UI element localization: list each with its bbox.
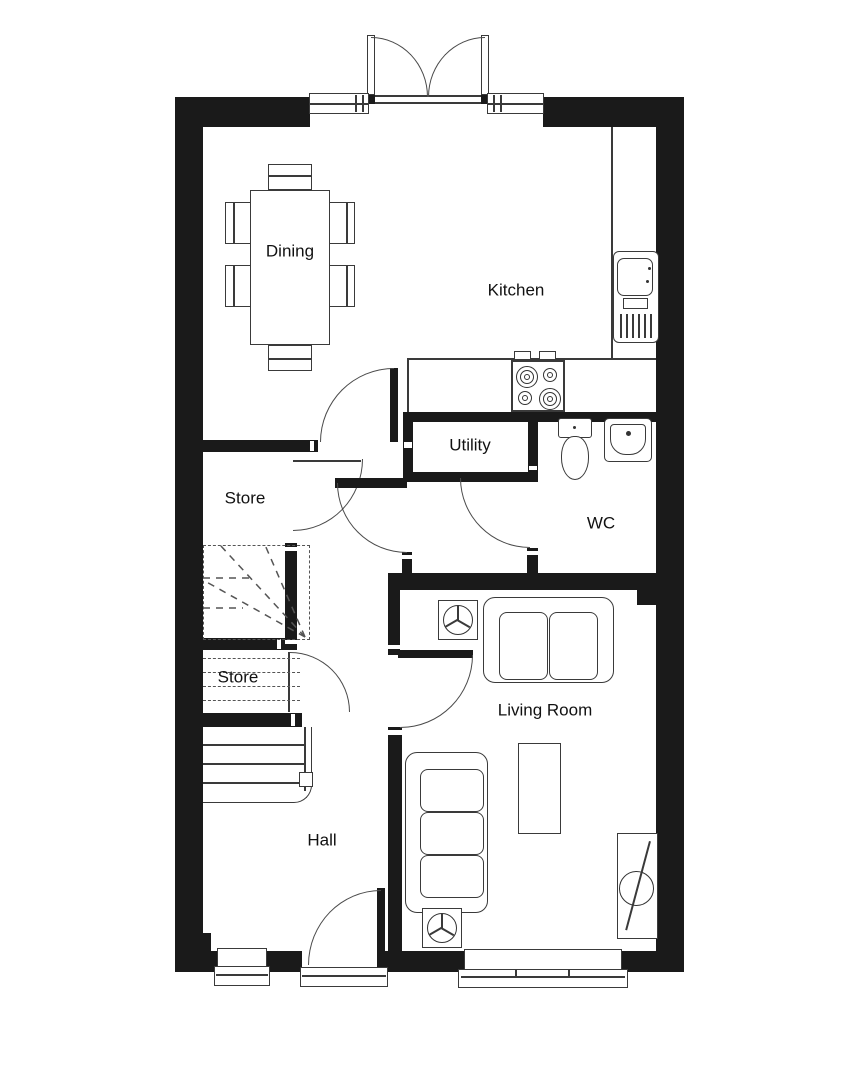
wall-livingroom-pillar [637, 573, 656, 605]
dining-chair-bottom-back [269, 358, 311, 360]
wall-livingroom-north [388, 573, 640, 590]
window-living-sill [458, 969, 628, 988]
front-door-threshold [300, 967, 388, 987]
toilet-button-dot [573, 426, 576, 429]
basin-tap-dot [626, 431, 631, 436]
window-living [464, 949, 622, 971]
dining-chair-left-1-back [233, 203, 235, 243]
kitchen-door-arc [320, 368, 394, 442]
wc-door-arc [460, 478, 530, 548]
window-living-line [461, 976, 625, 978]
dining-chair-right-1 [329, 202, 355, 244]
doorstop-utility-left [404, 442, 412, 448]
french-door-threshold-line-2 [374, 102, 482, 104]
window-hall-small-sill [214, 966, 270, 986]
doorstop-store-top [310, 441, 314, 451]
stove-knob-right [539, 351, 556, 360]
dining-chair-right-1-back [346, 203, 348, 243]
kitchen-sink-tray [623, 298, 648, 309]
dining-chair-top [268, 164, 312, 190]
wall-outer-bottom-2 [266, 951, 302, 972]
room-label-utility: Utility [449, 437, 491, 454]
doorstop-living-wall [388, 730, 402, 735]
sink-tap-dot-2 [646, 280, 649, 283]
wall-outer-bottom-3 [385, 951, 465, 972]
floor-plan: Dining Kitchen Utility WC Store Store Ha… [0, 0, 864, 1080]
kitchen-sink-bowl [617, 258, 653, 296]
window-top-right-tick-1 [493, 95, 495, 112]
window-living-tick-2 [568, 969, 570, 978]
plant-upper-spoke-1 [457, 606, 459, 620]
french-door-arc-right [428, 37, 485, 97]
window-hall-small [217, 948, 267, 968]
sink-drainer-line-1 [620, 314, 622, 338]
burner-br-inner [547, 396, 553, 402]
wall-store2-bottom [203, 713, 302, 727]
sofa-two-seat-cushion-right [549, 612, 598, 680]
dining-chair-right-2-back [346, 266, 348, 306]
store2-dash-4 [203, 700, 300, 701]
store2-dash-1 [203, 658, 300, 659]
doorstop-store-divider [277, 639, 281, 649]
room-label-hall: Hall [307, 832, 336, 849]
room-label-dining: Dining [266, 243, 314, 260]
front-door-arc [308, 890, 381, 965]
burner-bl-inner [522, 395, 528, 401]
stairs-winder-treads [203, 545, 310, 640]
stair-tread-1 [203, 744, 306, 746]
window-living-tick-1 [515, 969, 517, 978]
lobby-door-arc [337, 483, 407, 553]
french-door-arc-left [371, 37, 428, 97]
wall-outer-right [656, 97, 684, 972]
burner-tl-inner [524, 374, 530, 380]
wall-utility-bottom [413, 472, 455, 482]
doorstop-wc-stub [527, 551, 538, 555]
window-top-right-tick-2 [500, 95, 502, 112]
stairs-block [203, 727, 312, 803]
window-top-right-midline [488, 103, 543, 105]
wall-outer-top-left [175, 97, 310, 127]
stair-tread-2 [203, 763, 306, 765]
plant-lower-spoke-1 [441, 914, 443, 928]
store2-door-arc [290, 652, 350, 712]
wall-outer-bottom-4 [622, 951, 684, 972]
room-label-store-lower: Store [218, 669, 259, 686]
dining-chair-left-2 [225, 265, 251, 307]
doorstop-store-stub-bottom [285, 640, 297, 644]
wall-outer-left [175, 97, 203, 972]
window-top-left-tick-1 [355, 95, 357, 112]
dining-chair-left-1 [225, 202, 251, 244]
room-label-kitchen: Kitchen [488, 282, 545, 299]
kitchen-counter-edge-left [407, 358, 409, 412]
dining-chair-left-2-back [233, 266, 235, 306]
room-label-living-room: Living Room [498, 702, 593, 719]
sink-drainer-line-3 [632, 314, 634, 338]
doorstop-utility-right [529, 466, 537, 470]
sofa-three-seat-cushion-2 [420, 812, 484, 855]
wall-store-top [203, 440, 318, 452]
doorstop-living-stub [388, 645, 400, 649]
doorstop-store2 [291, 714, 295, 726]
wc-basin-bowl [610, 424, 646, 455]
window-top-left-midline [310, 103, 368, 105]
sofa-three-seat-cushion-1 [420, 769, 484, 812]
burner-tr-inner [547, 372, 553, 378]
doorstop-lobby-stub [402, 555, 412, 559]
room-label-wc: WC [587, 515, 615, 532]
stair-newel-post [299, 772, 313, 787]
wall-hall-living [388, 727, 402, 951]
dining-chair-right-2 [329, 265, 355, 307]
sink-drainer-line-2 [626, 314, 628, 338]
sink-drainer-line-4 [638, 314, 640, 338]
toilet-bowl [561, 436, 589, 480]
sofa-two-seat-cushion-left [499, 612, 548, 680]
room-label-store-upper: Store [225, 490, 266, 507]
sink-drainer-line-5 [644, 314, 646, 338]
wall-outer-bottom-1 [175, 951, 219, 972]
sink-tap-dot-1 [648, 267, 651, 270]
sink-drainer-line-6 [650, 314, 652, 338]
coffee-table [518, 743, 561, 834]
sofa-three-seat-cushion-3 [420, 855, 484, 898]
dining-table [250, 190, 330, 345]
window-top-left-tick-2 [362, 95, 364, 112]
stove-knob-left [514, 351, 531, 360]
dining-chair-top-back [269, 175, 311, 177]
window-hall-small-line [216, 974, 268, 976]
living-door-arc [400, 655, 473, 728]
front-door-threshold-line [302, 975, 386, 977]
stair-tread-3 [203, 782, 306, 784]
